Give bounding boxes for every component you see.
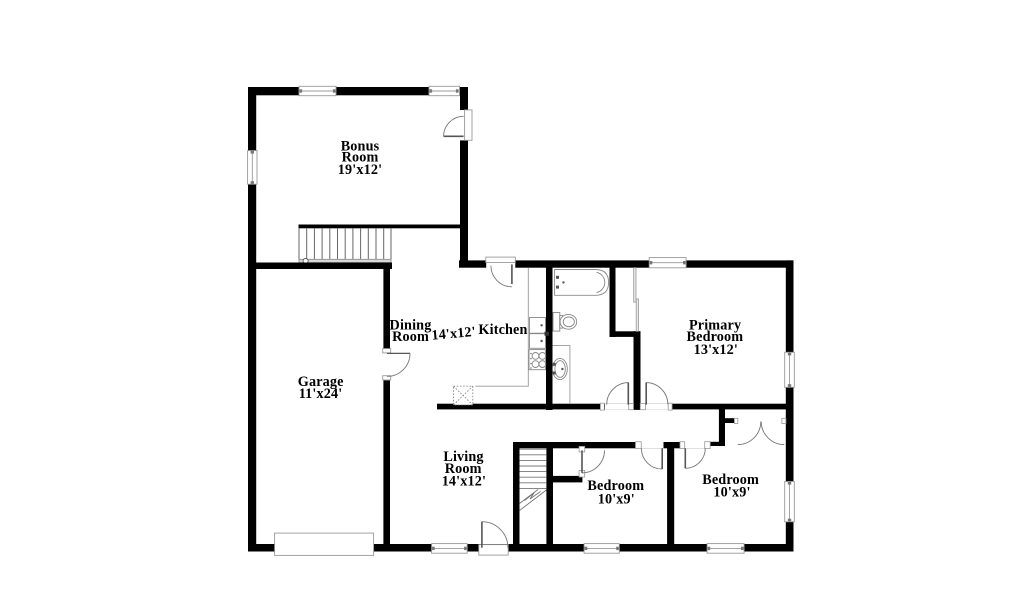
svg-text:Kitchen: Kitchen: [478, 322, 527, 338]
svg-text:Room: Room: [392, 329, 429, 345]
svg-text:10'x9': 10'x9': [598, 491, 635, 507]
svg-text:10'x9': 10'x9': [713, 485, 750, 501]
svg-text:19'x12': 19'x12': [338, 162, 382, 178]
svg-text:13'x12': 13'x12': [694, 342, 738, 358]
svg-text:14'x12': 14'x12': [442, 474, 486, 490]
svg-text:11'x24': 11'x24': [299, 386, 343, 402]
